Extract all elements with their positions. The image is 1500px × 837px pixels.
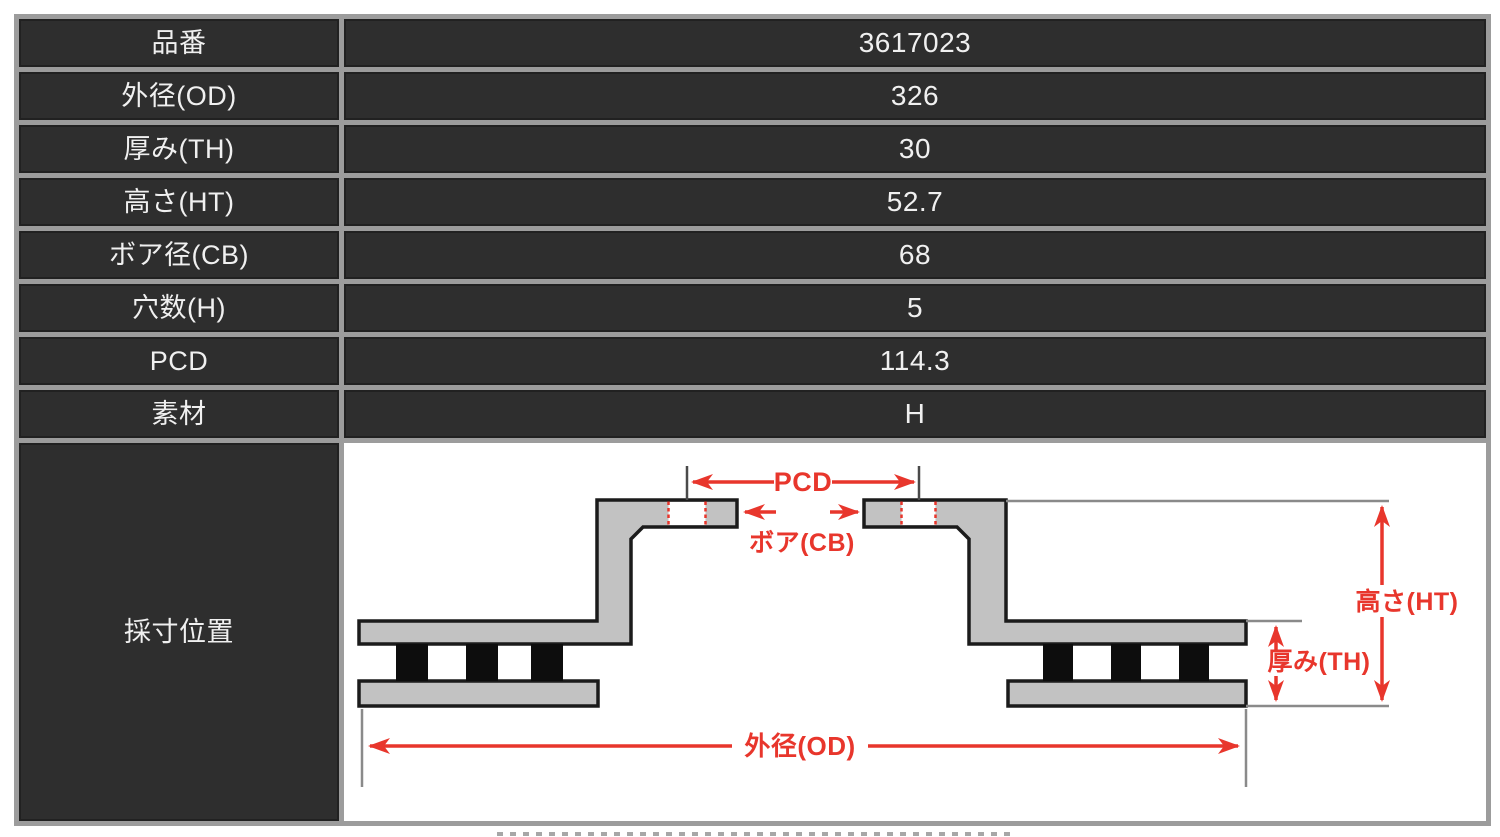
spec-value-thickness: 30	[344, 125, 1486, 173]
spec-value-part-number: 3617023	[344, 19, 1486, 67]
spec-label-outer-diameter: 外径(OD)	[19, 72, 339, 120]
rotor-left-vent-blocks	[396, 644, 563, 681]
pcd-dimension: PCD	[687, 466, 919, 500]
spec-label-pcd: PCD	[19, 337, 339, 385]
height-dimension: 高さ(HT)	[1006, 501, 1470, 706]
outer-diameter-label: 外径(OD)	[744, 731, 855, 761]
spec-label-measurement-position: 採寸位置	[19, 443, 339, 821]
page: { "spec_table": { "rows": [ { "label": "…	[0, 0, 1500, 837]
thickness-label: 厚み(TH)	[1268, 648, 1371, 676]
rotor-left-bottom-plate	[359, 681, 598, 706]
spec-value-pcd: 114.3	[344, 337, 1486, 385]
rotor-right-bottom-plate	[1008, 681, 1246, 706]
bore-label: ボア(CB)	[749, 529, 855, 557]
spec-label-height: 高さ(HT)	[19, 178, 339, 226]
spec-label-thickness: 厚み(TH)	[19, 125, 339, 173]
rotor-right-bolt-hole	[902, 502, 936, 525]
spec-value-outer-diameter: 326	[344, 72, 1486, 120]
pcd-label: PCD	[774, 467, 833, 497]
height-label: 高さ(HT)	[1356, 587, 1459, 616]
spec-value-center-bore: 68	[344, 231, 1486, 279]
rotor-right-half	[864, 500, 1246, 706]
spec-table: 品番 3617023 外径(OD) 326 厚み(TH) 30 高さ(HT) 5…	[14, 14, 1491, 826]
brake-rotor-cross-section-diagram: PCD ボア(CB) 高さ(HT) 厚み	[344, 443, 1486, 821]
spec-label-center-bore: ボア径(CB)	[19, 231, 339, 279]
spec-label-part-number: 品番	[19, 19, 339, 67]
bore-dimension: ボア(CB)	[745, 512, 858, 557]
cropped-artifact-line	[497, 832, 1012, 836]
spec-value-height: 52.7	[344, 178, 1486, 226]
spec-label-material: 素材	[19, 390, 339, 438]
measurement-diagram-cell: PCD ボア(CB) 高さ(HT) 厚み	[344, 443, 1486, 821]
spec-value-hole-count: 5	[344, 284, 1486, 332]
outer-diameter-dimension: 外径(OD)	[362, 709, 1246, 787]
rotor-right-vent-blocks	[1043, 644, 1209, 681]
thickness-dimension: 厚み(TH)	[1246, 621, 1370, 700]
spec-label-hole-count: 穴数(H)	[19, 284, 339, 332]
spec-value-material: H	[344, 390, 1486, 438]
rotor-left-bolt-hole	[669, 502, 706, 525]
rotor-left-half	[359, 500, 737, 706]
